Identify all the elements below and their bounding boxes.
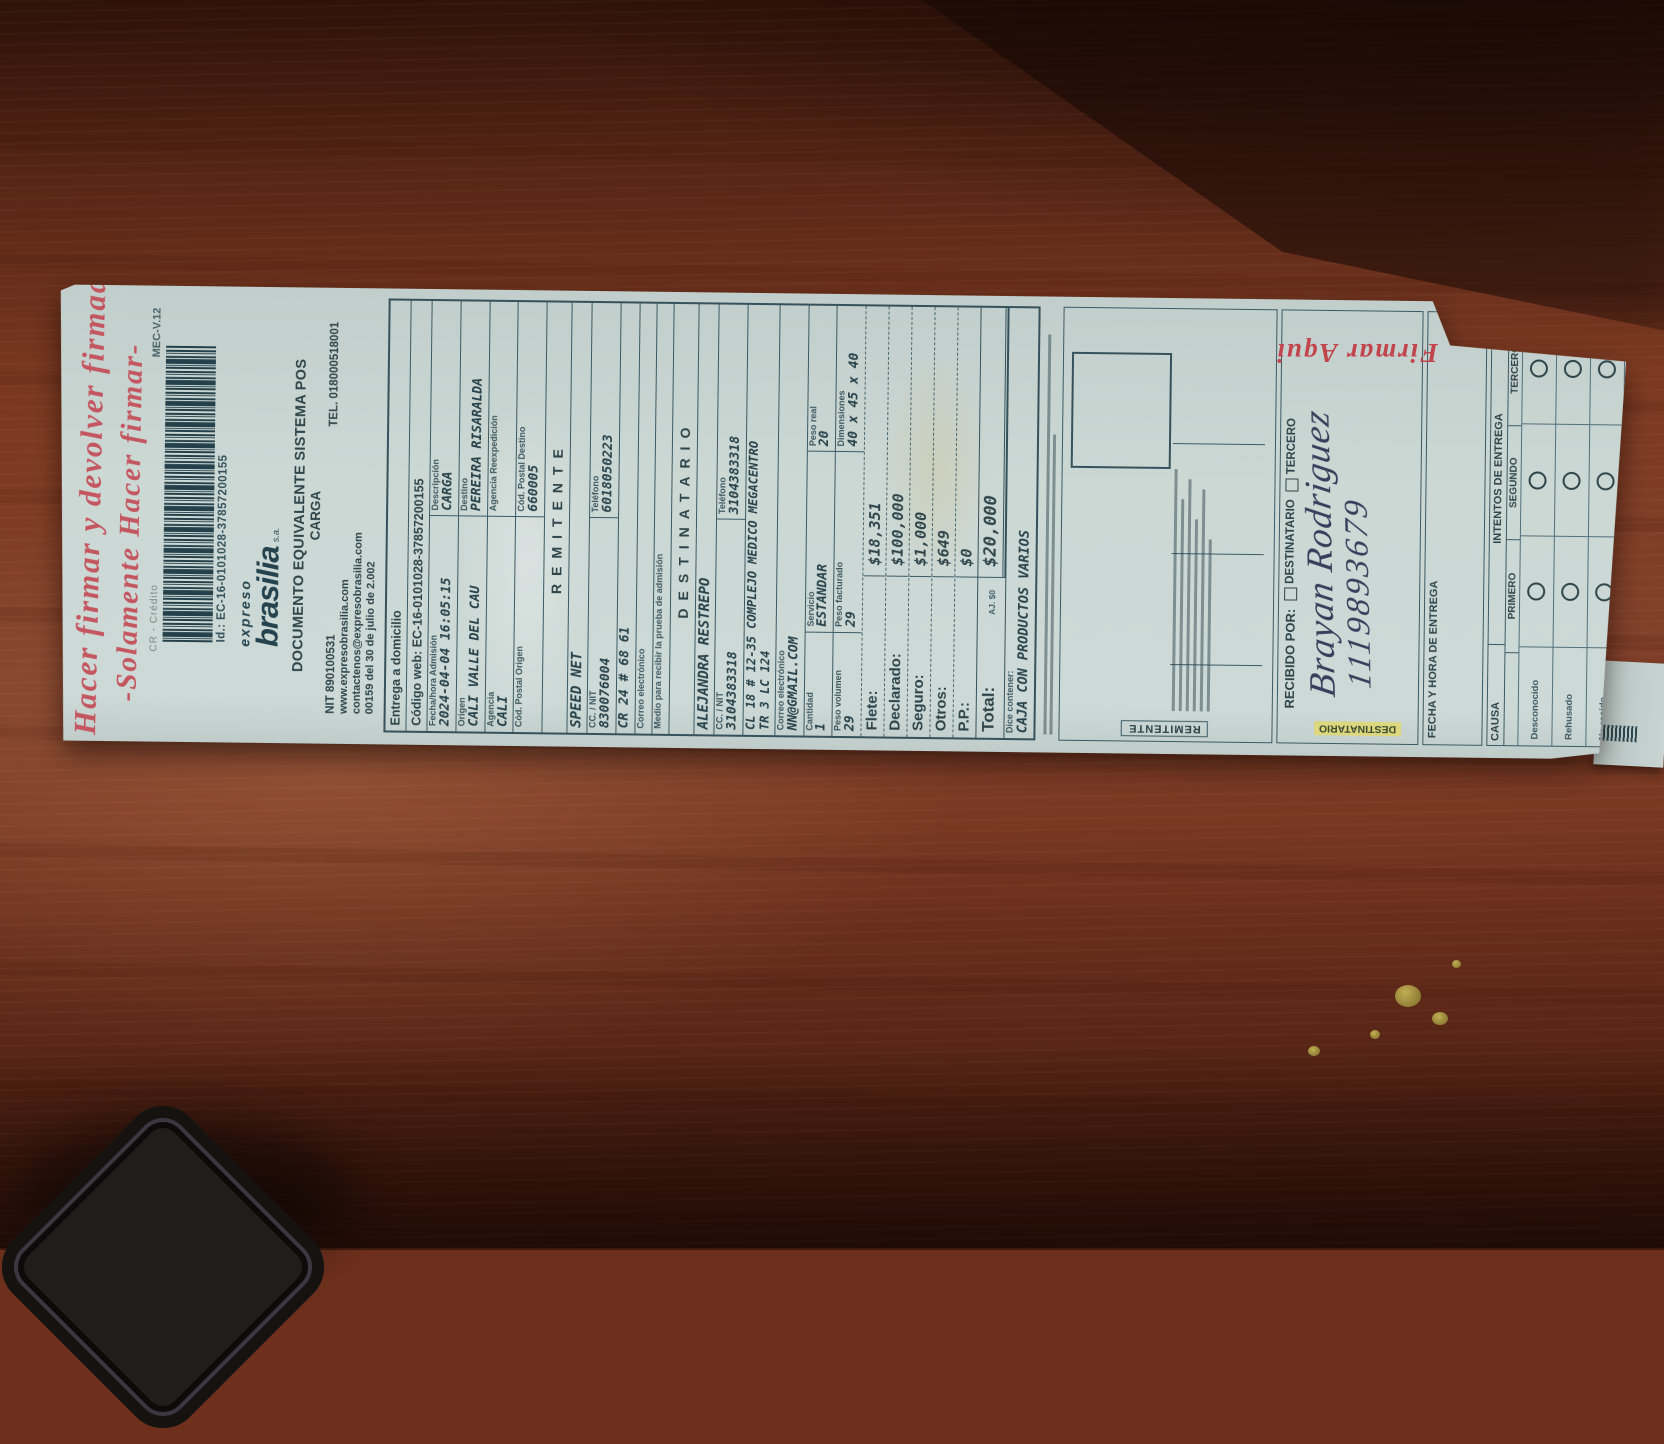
recipient-option-label: DESTINATARIO <box>1284 499 1297 584</box>
agency-value: CALI <box>496 522 513 727</box>
admission-value: 2024-04-04 16:05:15 <box>438 522 455 727</box>
received-by-section: RECIBIDO POR: DESTINATARIO TERCERO DESTI… <box>1276 309 1423 745</box>
attempt-circle <box>1561 583 1579 601</box>
crumb <box>1370 1030 1380 1039</box>
table-row: Peso volumen 29 Peso facturado 29 Dimens… <box>832 306 866 736</box>
fine-print-line <box>1049 435 1056 735</box>
attempt-circle <box>1595 583 1613 601</box>
total-value: $20,000 <box>979 308 1009 577</box>
cause-header: CAUSA <box>1487 645 1504 745</box>
total-adjust: AJ. $0 <box>987 584 997 615</box>
insurance-value: $1,000 <box>910 307 935 576</box>
company-logo: expreso brasilia s.a. <box>237 287 286 648</box>
cause-label: No reside <box>1597 648 1609 746</box>
attempt-circle <box>1564 360 1582 378</box>
table-row: Origen CALI VALLE DEL CAU Destino PEREIR… <box>455 301 489 731</box>
barcode-id-text: Id.: EC-16-0101028-37857200155 <box>215 286 231 642</box>
reexpedition-agency-label: Agencia Reexpedición <box>489 307 501 512</box>
pp-value: $0 <box>956 307 981 576</box>
total-label: Total: <box>979 687 1003 732</box>
sender-id-value: 830076004 <box>599 524 616 729</box>
cause-label: Desconocido <box>1529 647 1541 745</box>
insurance-label: Seguro: <box>908 576 932 737</box>
crumb <box>1432 1012 1448 1025</box>
others-label: Otros: <box>931 576 955 737</box>
attempt-circle <box>1530 360 1548 378</box>
company-tel: TEL. 018000518001 <box>328 322 341 427</box>
logo-brasilia-text: brasilia <box>249 546 285 647</box>
service-value: ESTANDAR <box>816 457 833 627</box>
declared-value: $100,000 <box>887 307 912 576</box>
origin-value: CALI VALLE DEL CAU <box>467 522 484 727</box>
sender-phone-value: 6018050223 <box>601 308 618 513</box>
handwritten-receiver-id: 1119893679 <box>1337 413 1378 705</box>
shipment-table: Entrega a domicilio Código web: EC-16-01… <box>383 298 1040 740</box>
cause-row: Rehusado <box>1551 314 1590 746</box>
recipient-checkbox <box>1284 588 1297 601</box>
attempt-circle <box>1527 582 1545 600</box>
table-row: Cantidad 1 Servicio ESTANDAR Peso real 2… <box>803 306 837 736</box>
volume-weight-value: 29 <box>844 638 860 731</box>
cause-row: No reside <box>1585 314 1624 746</box>
others-value: $649 <box>933 307 958 576</box>
barcode <box>162 346 216 643</box>
pp-label: P.P.: <box>954 576 978 737</box>
description-value: CARGA <box>441 306 458 511</box>
billed-weight-value: 29 <box>845 458 862 628</box>
company-nit: NIT 890100531 <box>325 634 338 713</box>
postal-origin-label: Cód. Postal Origen <box>515 523 527 728</box>
sender-signature-section: REMITENTE <box>1058 307 1277 744</box>
crumb <box>1452 960 1461 968</box>
form-version-label: MEC-V.12 <box>151 308 164 358</box>
recipient-phone-value: 3104383318 <box>728 310 745 515</box>
handwritten-receiver-name: Brayan Rodriguez <box>1298 407 1343 699</box>
dimensions-value: 40 x 45 x 40 <box>847 311 864 447</box>
delivery-datetime-field: FECHA Y HORA DE ENTREGA <box>1422 311 1487 746</box>
attempt-circle <box>1597 472 1615 490</box>
declared-label: Declarado: <box>885 576 909 737</box>
received-by-label: RECIBIDO POR: <box>1281 609 1297 709</box>
handwritten-receiver-signature: Brayan Rodriguez 1119893679 <box>1298 407 1378 704</box>
attempt-circle <box>1598 360 1616 378</box>
table-row: Cód. Postal Origen Cód. Postal Destino 6… <box>513 302 547 732</box>
logo-sa-text: s.a. <box>271 528 281 543</box>
sender-side-label: REMITENTE <box>1079 716 1249 742</box>
quantity-value: 1 <box>815 638 831 731</box>
destination-value: PEREIRA RISARALDA <box>470 306 487 511</box>
payment-type-label: CR - Crédito <box>148 584 160 652</box>
table-row: CC. / NIT 830076004 Teléfono 6018050223 <box>587 303 621 733</box>
fine-print-paragraph <box>1171 469 1212 711</box>
quantity-label: Cantidad <box>805 637 816 730</box>
crumb <box>1395 985 1421 1007</box>
attempt-col-first: PRIMERO <box>1505 540 1519 653</box>
attempt-col-second: SEGUNDO <box>1506 426 1520 539</box>
table-row: Fecha/hora Admisión 2024-04-04 16:05:15 … <box>426 301 460 731</box>
real-weight-value: 20 <box>818 311 835 447</box>
freight-value: $18,351 <box>864 306 889 575</box>
recipient-side-label-highlighted: DESTINATARIO <box>1305 715 1409 742</box>
third-party-checkbox <box>1285 478 1298 491</box>
postal-destination-value: 660005 <box>527 307 544 512</box>
attempt-circle <box>1563 471 1581 489</box>
freight-label: Flete: <box>862 575 886 736</box>
handwritten-sign-here-note: Firmar Aqui <box>1238 328 1438 368</box>
attempt-circle <box>1529 471 1547 489</box>
total-row: Total: AJ. $0 $20,000 <box>976 308 1009 738</box>
crumb <box>1308 1046 1320 1056</box>
cause-label: Rehusado <box>1563 648 1575 746</box>
table-row: CC. / NIT 3104383318 Teléfono 3104383318 <box>714 304 748 734</box>
seal-box <box>1070 352 1171 469</box>
table-row: Agencia CALI Agencia Reexpedición <box>484 302 518 732</box>
cause-row: Desconocido <box>1517 313 1556 745</box>
attempt-col-third: TERCERO <box>1508 313 1522 426</box>
recipient-id-value: 3104383318 <box>726 525 743 730</box>
